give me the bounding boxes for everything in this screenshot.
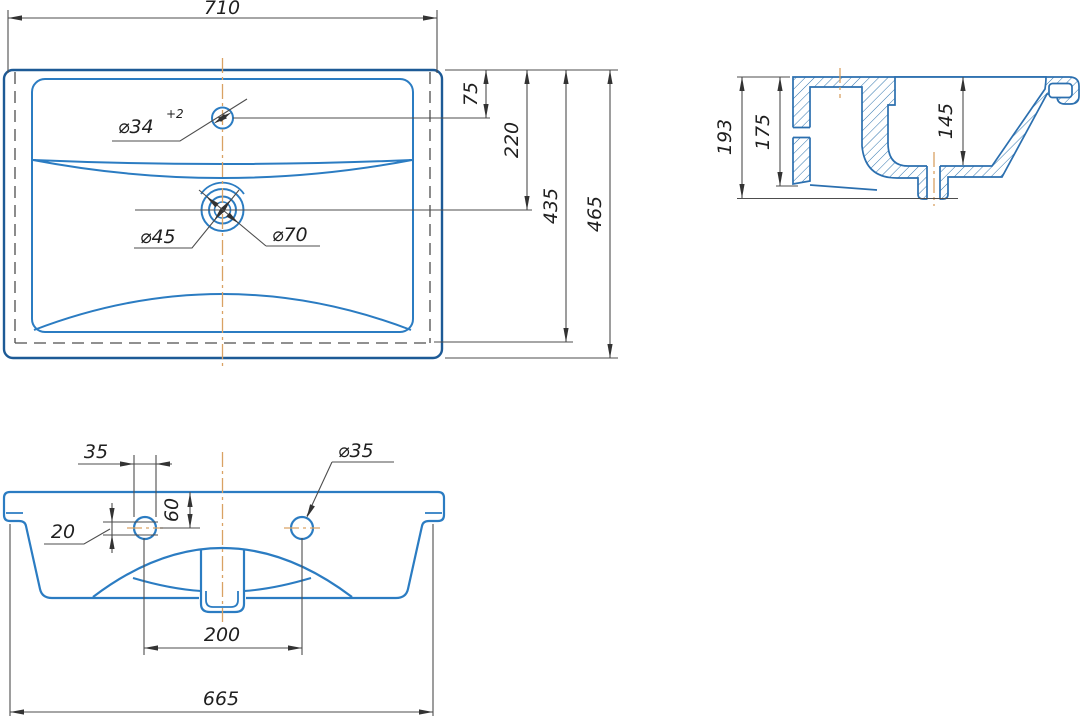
dim-75-label: 75 bbox=[460, 82, 482, 106]
dim-665-label: 665 bbox=[203, 688, 239, 710]
dim-193-label: 193 bbox=[714, 119, 736, 155]
callout-drain-45: ⌀45 bbox=[134, 190, 239, 248]
dim-710-label: 710 bbox=[204, 0, 240, 19]
callout-hole-dia: ⌀35 bbox=[307, 440, 394, 518]
dim-145-label: 145 bbox=[935, 103, 957, 139]
callout-drain-70-label: ⌀70 bbox=[272, 224, 308, 246]
plan-view bbox=[4, 58, 442, 368]
dim-75: 75 bbox=[460, 70, 489, 118]
dim-193: 193 bbox=[714, 77, 745, 198]
callout-hole-dia-label: ⌀35 bbox=[338, 440, 374, 462]
section-lip-notch bbox=[1049, 84, 1072, 98]
dim-465: 465 bbox=[584, 70, 613, 358]
dim-220: 220 bbox=[501, 70, 530, 210]
drawing-sheet: 710 75 220 435 465 bbox=[0, 0, 1088, 722]
dim-35: 35 bbox=[78, 441, 172, 517]
dim-435: 435 bbox=[540, 70, 569, 342]
callout-drain-45-label: ⌀45 bbox=[140, 226, 176, 248]
dim-220-label: 220 bbox=[501, 122, 523, 158]
dim-435-label: 435 bbox=[540, 188, 562, 224]
dim-60: 60 bbox=[160, 492, 200, 528]
dim-200-label: 200 bbox=[204, 624, 240, 646]
plan-dimensions: 710 75 220 435 465 bbox=[8, 0, 618, 358]
front-outline bbox=[4, 492, 444, 598]
dim-60-label: 60 bbox=[161, 498, 183, 522]
dim-175-label: 175 bbox=[752, 114, 774, 150]
dim-465-label: 465 bbox=[584, 196, 606, 232]
callout-faucet-tol-label: +2 bbox=[166, 107, 184, 121]
section-mount-hole bbox=[792, 128, 812, 138]
dim-20-label: 20 bbox=[51, 521, 75, 543]
dim-35-label: 35 bbox=[84, 441, 108, 463]
callout-faucet-dia-label: ⌀34 bbox=[118, 116, 154, 138]
section-basin-cavity bbox=[888, 77, 1046, 166]
front-dimensions: 35 60 20 ⌀35 200 bbox=[10, 440, 433, 716]
dim-175: 175 bbox=[752, 77, 783, 186]
callout-faucet-dia: ⌀34 +2 bbox=[112, 99, 247, 141]
dim-665: 665 bbox=[10, 524, 433, 716]
technical-drawing: 710 75 220 435 465 bbox=[0, 0, 1088, 722]
section-underside-edge bbox=[810, 185, 877, 190]
